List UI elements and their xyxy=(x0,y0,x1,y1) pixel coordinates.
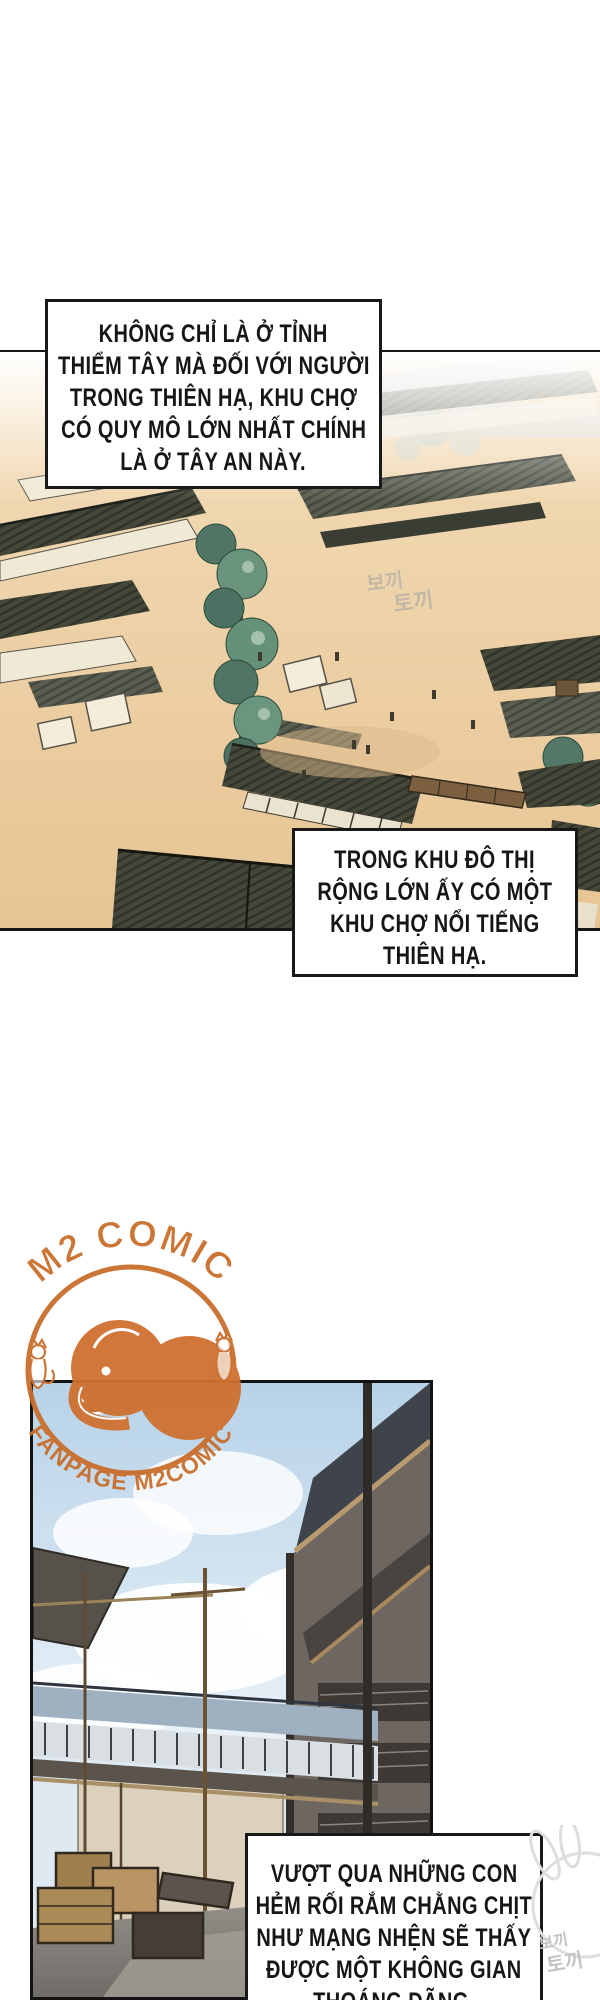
narration-box-2: TRONG KHU ĐÔ THỊ RỘNG LỚN ẤY CÓ MỘT KHU … xyxy=(292,828,578,977)
narration-line: CÓ QUY MÔ LỚN NHẤT CHÍNH xyxy=(61,414,366,446)
narration-line: THIÊN HẠ. xyxy=(383,940,487,972)
narration-line: THIỂM TÂY MÀ ĐỐI VỚI NGƯỜI xyxy=(58,350,370,382)
corner-mark-line2: 토끼 xyxy=(545,1948,585,1977)
narration-line: VƯỢT QUA NHỮNG CON xyxy=(271,1858,518,1890)
ghost-mark-line2: 토끼 xyxy=(392,587,435,617)
narration-line: KHU CHỢ NỔI TIẾNG xyxy=(330,908,539,940)
narration-box-1: KHÔNG CHỈ LÀ Ở TỈNH THIỂM TÂY MÀ ĐỐI VỚI… xyxy=(45,299,382,489)
elephant-mascot-icon xyxy=(71,1320,241,1440)
m2comic-watermark-logo: M2 COMIC FANPAGE M2COMIC xyxy=(0,1205,276,1535)
narration-line: NHƯ MẠNG NHỆN SẼ THẤY xyxy=(257,1922,532,1954)
comic-page: 보끼 토끼 KHÔNG CHỈ LÀ Ở TỈNH THIỂM TÂY MÀ Đ… xyxy=(0,0,600,2000)
fox-mascot-left-icon xyxy=(30,1340,54,1388)
narration-line: TRONG THIÊN HẠ, KHU CHỢ xyxy=(70,382,357,414)
narration-line: KHÔNG CHỈ LÀ Ở TỈNH xyxy=(99,318,328,350)
narration-line: HẺM RỐI RẮM CHẰNG CHỊT xyxy=(256,1890,533,1922)
narration-box-3: VƯỢT QUA NHỮNG CON HẺM RỐI RẮM CHẰNG CHỊ… xyxy=(245,1833,543,2000)
narration-line: LÀ Ở TÂY AN NÀY. xyxy=(121,446,307,478)
narration-line: ĐƯỢC MỘT KHÔNG GIAN xyxy=(266,1954,522,1986)
narration-line: TRONG KHU ĐÔ THỊ xyxy=(335,844,536,876)
narration-line: RỘNG LỚN ẤY CÓ MỘT xyxy=(318,876,553,908)
narration-line: THOÁNG ĐÃNG. xyxy=(313,1986,474,2000)
corner-rabbit-watermark: 보끼 토끼 xyxy=(515,1825,600,2000)
logo-arc-top-text: M2 COMIC xyxy=(20,1212,243,1290)
